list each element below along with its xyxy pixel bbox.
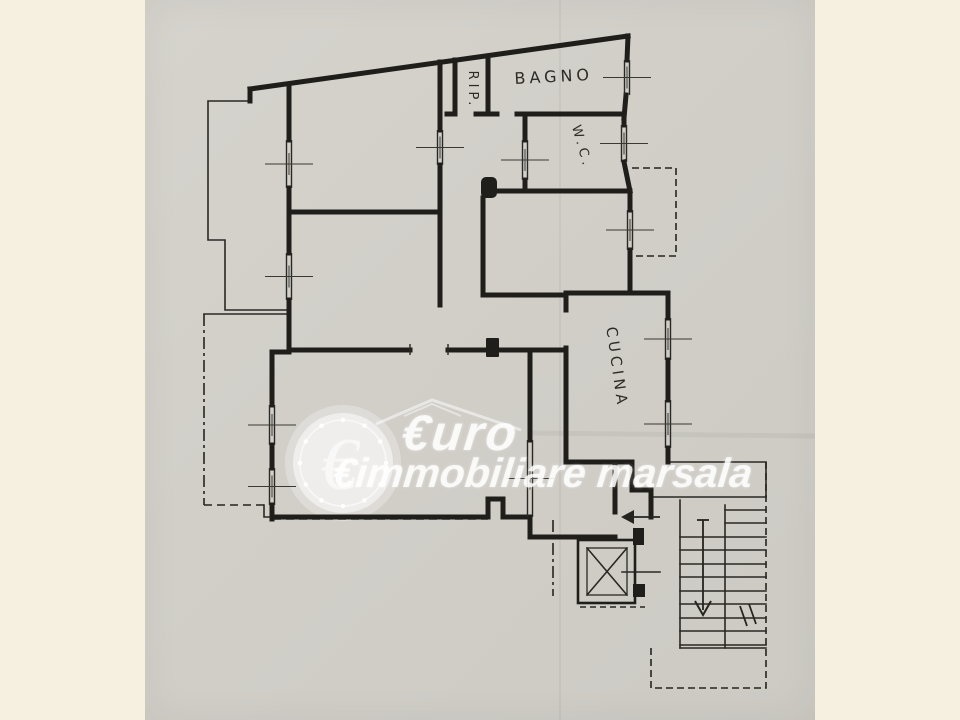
wall-segment bbox=[627, 36, 628, 60]
wall-segment bbox=[624, 162, 630, 191]
entry-arrow-head bbox=[621, 510, 634, 524]
coin-dot bbox=[303, 482, 308, 487]
house-roof-outline bbox=[376, 400, 521, 430]
coin-dot bbox=[378, 439, 383, 444]
room-label-cucina: CUCINA bbox=[602, 326, 631, 410]
paper-creases bbox=[530, 0, 815, 720]
coin-dot bbox=[362, 498, 367, 503]
staircase bbox=[680, 510, 766, 645]
thin-line bbox=[208, 101, 287, 310]
room-label-bagno: BAGNO bbox=[514, 65, 593, 88]
coin-dot bbox=[303, 439, 308, 444]
wall-segment bbox=[488, 499, 503, 517]
coin-dot bbox=[384, 461, 389, 466]
crease-line bbox=[530, 433, 815, 436]
dashed-outline bbox=[651, 462, 766, 688]
walls bbox=[250, 36, 668, 597]
coin-dot bbox=[362, 423, 367, 428]
thin-line bbox=[668, 462, 766, 497]
coin-dot bbox=[298, 461, 303, 466]
door-jamb bbox=[481, 177, 497, 198]
coin-dot bbox=[341, 418, 346, 423]
stair-break-hatch bbox=[749, 604, 756, 624]
floor-plan-drawing: €RIP.BAGNOW.C.CUCINA bbox=[0, 0, 960, 720]
stair-break-hatch bbox=[740, 606, 747, 626]
door-jamb bbox=[486, 338, 499, 357]
scanned-floor-plan-page: €RIP.BAGNOW.C.CUCINA €uro €immobiliare m… bbox=[0, 0, 960, 720]
dashed-outline bbox=[632, 168, 676, 256]
coin-dot bbox=[378, 482, 383, 487]
coin-euro-symbol: € bbox=[321, 424, 361, 506]
wall-segment bbox=[624, 95, 626, 118]
room-label-rip: RIP. bbox=[465, 71, 480, 110]
room-labels: RIP.BAGNOW.C.CUCINA bbox=[465, 65, 632, 409]
elevator-shaft bbox=[578, 540, 635, 603]
room-label-wc: W.C. bbox=[568, 123, 595, 170]
